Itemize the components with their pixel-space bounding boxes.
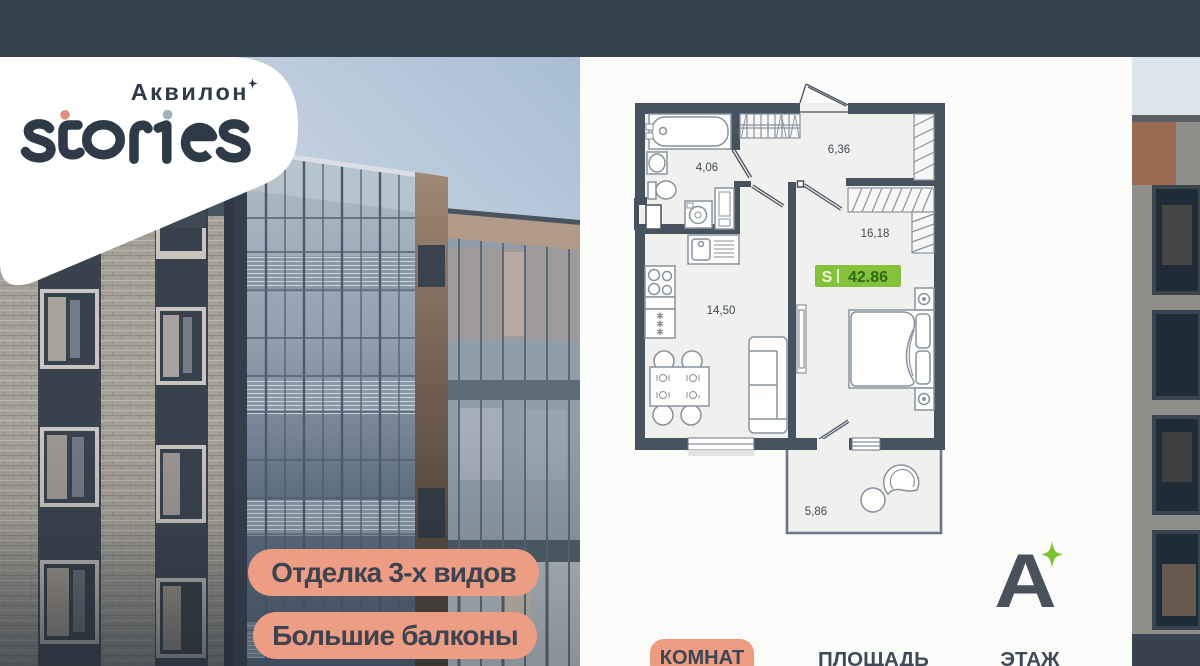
- svg-text:16,18: 16,18: [861, 228, 890, 240]
- svg-text:✱: ✱: [656, 327, 664, 337]
- svg-text:4,06: 4,06: [696, 162, 718, 174]
- svg-text:5,86: 5,86: [805, 506, 827, 518]
- svg-text:42.86: 42.86: [848, 269, 888, 286]
- svg-text:14,50: 14,50: [707, 305, 736, 317]
- svg-text:S: S: [822, 269, 833, 286]
- svg-text:6,36: 6,36: [828, 144, 850, 156]
